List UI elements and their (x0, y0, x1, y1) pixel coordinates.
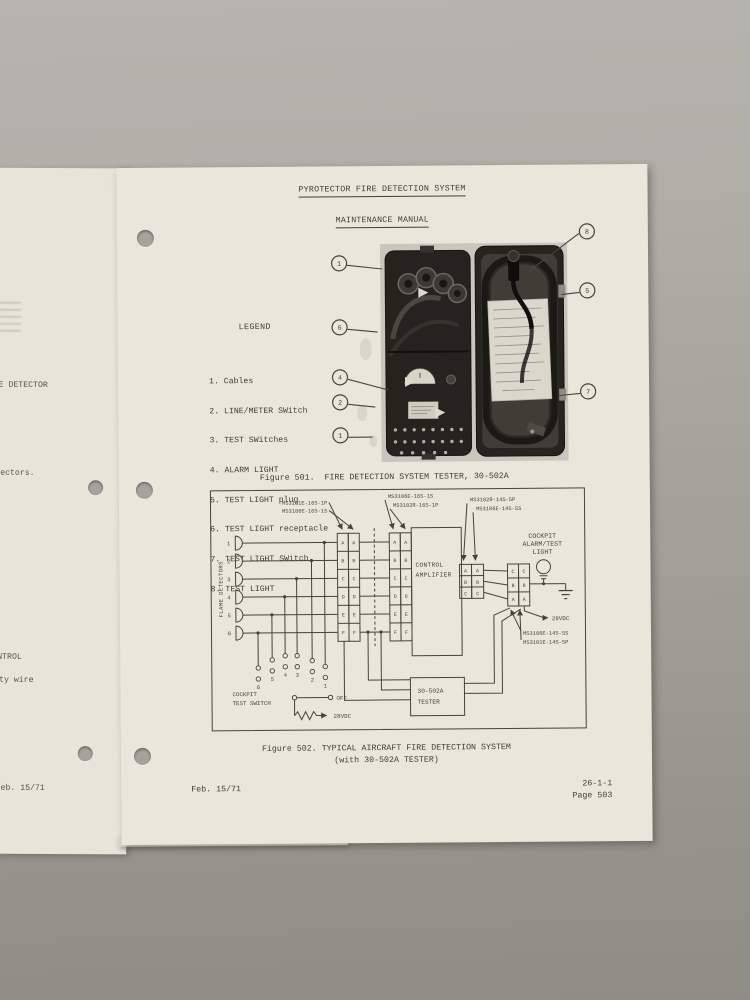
footer-date: Feb. 15/71 (191, 785, 241, 794)
svg-text:A: A (352, 540, 355, 546)
off-label: OFF (336, 695, 347, 702)
svg-text:D: D (394, 594, 397, 600)
connector2-label-a: MS3106E-16S-1S (388, 494, 433, 500)
switch-terminals (256, 653, 328, 681)
callout-6: 6 (338, 325, 342, 333)
svg-text:COCKPIT: COCKPIT (528, 533, 556, 540)
page-fragment: ectors. (0, 469, 34, 478)
tester-label-1: 30-502A (417, 688, 443, 695)
callout-7: 7 (586, 389, 590, 397)
28vdc-switch-label: 28VDC (334, 713, 352, 720)
connector4-label-b: MS3101E-14S-5P (523, 640, 568, 646)
svg-text:3: 3 (227, 576, 230, 583)
detector-numbers: 1 2 3 4 5 6 (227, 540, 232, 637)
test-switch (292, 695, 333, 720)
figure-502-caption-line1: Figure 502. TYPICAL AIRCRAFT FIRE DETECT… (121, 742, 652, 755)
svg-text:ALARM/TEST: ALARM/TEST (523, 541, 563, 548)
svg-text:A: A (393, 540, 396, 546)
figure-502-diagram: FLAME DETECTORS 1 2 3 4 5 6 (209, 486, 589, 733)
svg-text:1: 1 (227, 540, 231, 547)
punch-hole (88, 480, 103, 495)
connector-pair-2 (389, 533, 412, 641)
amp-label-2: AMPLIFIER (416, 571, 452, 578)
svg-text:6: 6 (257, 684, 260, 691)
knob (446, 375, 455, 384)
page-fragment: eb. 15/71 (1, 784, 45, 793)
flame-detectors-label: FLAME DETECTORS (217, 561, 224, 618)
detector-wires (242, 542, 338, 633)
callout-5: 5 (585, 288, 589, 296)
svg-text:D: D (353, 594, 356, 600)
svg-text:B: B (512, 583, 515, 589)
callout-4: 4 (338, 375, 342, 383)
callout-2: 2 (338, 400, 342, 408)
svg-text:E: E (342, 612, 345, 618)
svg-text:D: D (405, 594, 408, 600)
svg-text:A: A (464, 568, 467, 574)
svg-text:A: A (476, 568, 479, 574)
footer-page: Page 503 (572, 790, 612, 802)
connector3-label-b: MS3106E-14S-5S (476, 506, 521, 512)
test-switch-label-2: TEST SWITCH (233, 700, 272, 707)
switch-terminal-numbers: 6 5 4 3 2 1 (257, 671, 328, 691)
svg-text:F: F (342, 630, 345, 636)
tester-panel-half (385, 245, 472, 460)
connector1-label-b: MS3106E-16S-1S (282, 508, 327, 514)
svg-text:4: 4 (227, 594, 231, 601)
tester-lid-half (475, 246, 567, 457)
instruction-card (488, 299, 552, 401)
punch-hole (78, 746, 93, 761)
svg-text:4: 4 (284, 672, 288, 679)
ground-symbol (559, 591, 573, 599)
svg-text:C: C (405, 576, 408, 582)
svg-text:C: C (342, 576, 345, 582)
amp-to-light-wires (484, 570, 508, 599)
svg-text:A: A (512, 597, 515, 603)
svg-text:2: 2 (227, 558, 230, 565)
callout-1: 1 (337, 261, 341, 269)
svg-text:B: B (393, 558, 396, 564)
callout-8: 8 (585, 229, 589, 237)
test-switch-label-1: COCKPIT (232, 691, 257, 698)
junction-dots (256, 540, 383, 634)
tester-label-2: TESTER (418, 699, 441, 706)
connector-mate-line (374, 528, 375, 646)
svg-text:B: B (352, 558, 355, 564)
svg-text:C: C (394, 576, 397, 582)
svg-text:C: C (523, 569, 526, 575)
cockpit-light-label: COCKPIT ALARM/TEST LIGHT (522, 533, 562, 556)
diagram-border (210, 488, 586, 731)
manual-page: PYROTECTOR FIRE DETECTION SYSTEM MAINTEN… (116, 164, 652, 845)
page-title-text: PYROTECTOR FIRE DETECTION SYSTEM (298, 183, 465, 197)
callout-1b: 1 (338, 433, 342, 441)
tester-box (410, 677, 464, 715)
page-fragment: ty wire (0, 676, 34, 685)
svg-text:B: B (476, 580, 479, 586)
svg-text:C: C (512, 569, 515, 575)
svg-text:F: F (405, 630, 408, 636)
detector-symbols (235, 536, 243, 640)
punch-hole (136, 482, 153, 499)
svg-text:5: 5 (228, 612, 231, 619)
svg-text:E: E (405, 612, 408, 618)
svg-text:6: 6 (228, 630, 231, 637)
svg-text:A: A (341, 540, 344, 546)
figure-501-caption: Figure 501. FIRE DETECTION SYSTEM TESTER… (119, 471, 650, 484)
tester-wires (344, 608, 522, 700)
amp-label-1: CONTROL (415, 562, 443, 569)
legend-item: 1. Cables (209, 376, 327, 387)
svg-text:B: B (404, 558, 407, 564)
svg-text:B: B (341, 558, 344, 564)
svg-text:3: 3 (296, 672, 299, 679)
underlying-page: E DETECTOR ectors. NTROL ty wire eb. 15/… (0, 168, 130, 855)
svg-text:E: E (353, 612, 356, 618)
legend-heading: LEGEND (239, 323, 271, 332)
svg-text:1: 1 (324, 682, 328, 689)
punch-hole (137, 230, 154, 247)
svg-text:B: B (523, 583, 526, 589)
svg-text:5: 5 (271, 676, 274, 683)
legend-item: 2. LINE/METER SWitch (209, 406, 327, 417)
svg-text:2: 2 (311, 677, 314, 684)
paper-smudges (357, 338, 378, 447)
connector-pair-1 (337, 533, 360, 641)
faint-text-block (0, 302, 21, 332)
light-bulb (536, 560, 550, 584)
svg-text:C: C (476, 591, 479, 597)
svg-text:F: F (353, 630, 356, 636)
28vdc-right-wire (524, 606, 548, 618)
legend-item: 3. TEST SWitches (209, 436, 327, 447)
photo-of-manual-page: { "doc": { "title": "PYROTECTOR FIRE DET… (0, 0, 750, 1000)
footer-ref: 26-1-1 Page 503 (572, 778, 612, 802)
page-fragment: E DETECTOR (0, 381, 48, 390)
wire-dot (542, 582, 545, 585)
svg-text:A: A (404, 540, 407, 546)
footer-code: 26-1-1 (572, 778, 612, 790)
svg-text:C: C (353, 576, 356, 582)
lid-latch (558, 285, 565, 298)
control-amplifier-box (411, 527, 462, 655)
svg-text:F: F (394, 630, 397, 636)
svg-text:LIGHT: LIGHT (532, 549, 552, 556)
svg-text:A: A (523, 597, 526, 603)
svg-text:E: E (394, 612, 397, 618)
connector3-label-a: MS3102R-14S-5P (470, 497, 515, 503)
connector1-label-a: MS3101E-16S-1P (282, 500, 327, 506)
figure-501-photo: 1 6 4 2 1 8 5 7 (317, 219, 599, 473)
page-title: PYROTECTOR FIRE DETECTION SYSTEM (116, 182, 647, 196)
light-ground-wire (530, 584, 566, 591)
svg-text:D: D (342, 594, 345, 600)
svg-text:B: B (464, 580, 467, 586)
connector2-label-b: MS3102R-16S-1P (393, 503, 438, 509)
28vdc-right-label: 28VDC (552, 615, 570, 622)
connector4-label-a: MS3106E-14S-5S (523, 631, 568, 637)
tester-photo (380, 243, 569, 462)
page-fragment: NTROL (0, 653, 22, 662)
svg-text:C: C (464, 591, 467, 597)
figure-502-caption-line2: (with 30-502A TESTER) (121, 754, 652, 767)
